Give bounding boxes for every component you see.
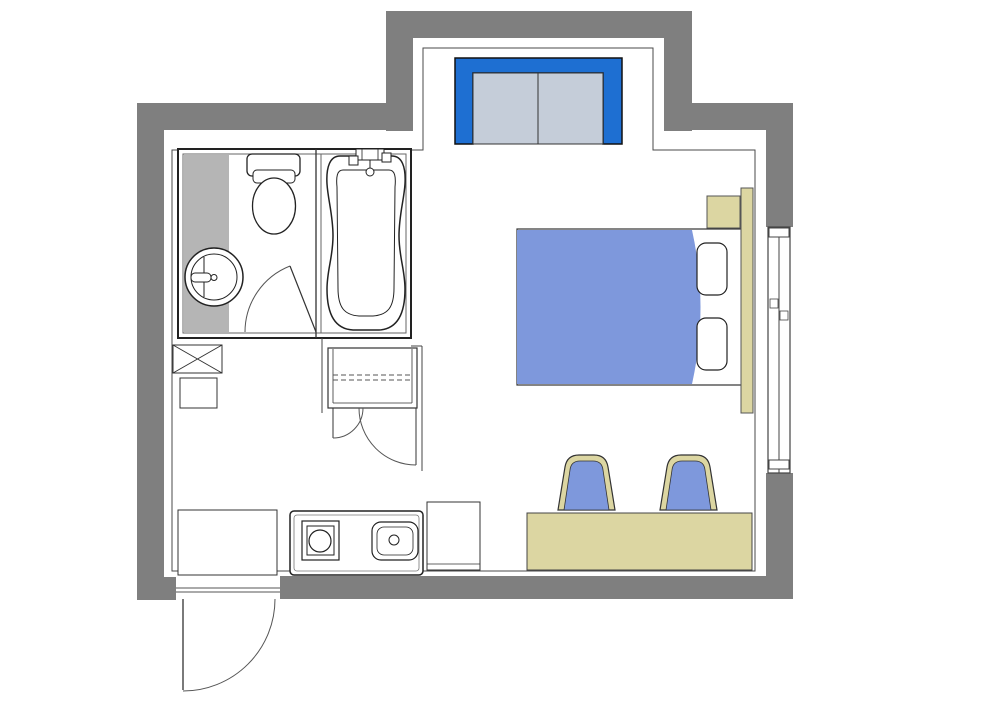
wall-left	[137, 103, 164, 600]
cabinet-right	[427, 502, 480, 570]
wall-alcove-top	[386, 11, 692, 38]
pillow-bottom	[697, 318, 727, 370]
tub-shower-head	[366, 168, 374, 176]
entry-door-arc	[183, 599, 275, 691]
tub-handle-right	[382, 153, 391, 162]
chair-left-seat	[564, 461, 609, 510]
kitchen-sink-drain	[389, 535, 399, 545]
closet-door-small-arc	[333, 408, 363, 438]
cooktop-burner	[309, 530, 331, 552]
bed-duvet	[517, 230, 701, 384]
wall-right-upper	[766, 103, 793, 227]
basin-faucet-knob	[211, 275, 217, 281]
sofa-seat-left	[473, 73, 538, 144]
pillow-top	[697, 243, 727, 295]
wall-bottom	[280, 576, 793, 599]
basin-faucet	[191, 273, 211, 282]
sofa-seat-right	[538, 73, 603, 144]
floor-plan	[0, 0, 1000, 707]
nightstand	[707, 196, 740, 228]
wall-entry-corner	[137, 577, 176, 600]
closet-body	[328, 348, 417, 408]
desk	[527, 513, 752, 570]
counter-left	[178, 510, 277, 575]
chair-right-seat	[666, 461, 711, 510]
wall-top-left	[137, 103, 413, 130]
window-cap-top	[769, 228, 789, 237]
window-latch-left	[770, 299, 778, 308]
window-cap-bottom	[769, 460, 789, 469]
utility-box	[180, 378, 217, 408]
headboard	[741, 188, 753, 413]
floor-plan-canvas	[0, 0, 1000, 707]
tub-faucet-body	[356, 149, 384, 160]
window-latch-right	[780, 311, 788, 320]
closet-door-large-arc	[359, 408, 416, 465]
tub-handle-left	[349, 156, 358, 165]
floor-plan-page	[0, 0, 1000, 707]
bathtub-outer	[327, 156, 405, 330]
toilet-bowl	[253, 178, 296, 234]
